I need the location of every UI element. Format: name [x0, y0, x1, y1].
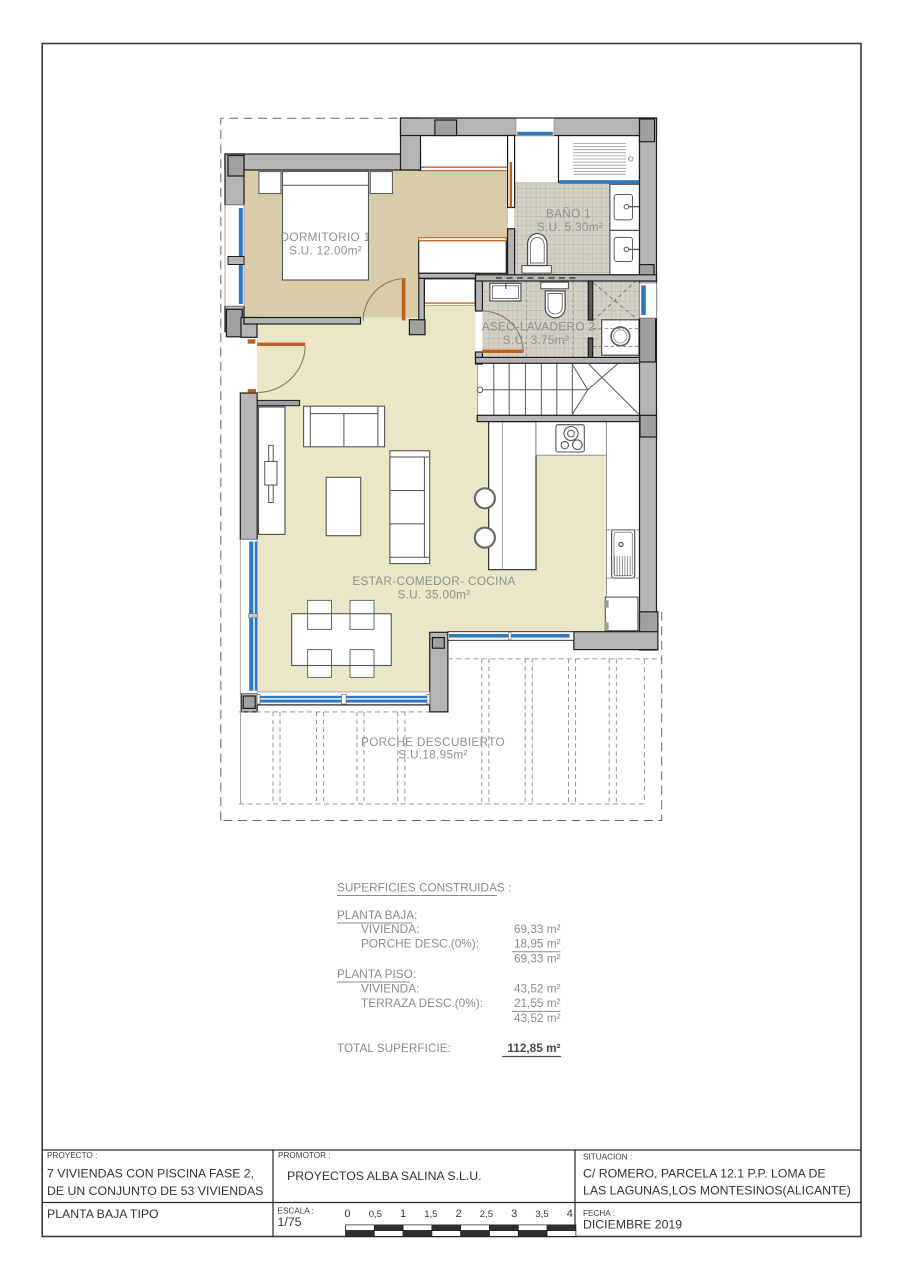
svg-text:BAÑO 1: BAÑO 1 — [546, 207, 591, 221]
svg-text:2: 2 — [456, 1208, 462, 1220]
svg-text:18,95 m²: 18,95 m² — [514, 937, 561, 951]
svg-text:TOTAL SUPERFICIE:: TOTAL SUPERFICIE: — [337, 1041, 451, 1055]
svg-text:PROYECTOS ALBA SALINA S.L.U.: PROYECTOS ALBA SALINA S.L.U. — [287, 1169, 482, 1183]
svg-text:PORCHE DESC.(0%):: PORCHE DESC.(0%): — [361, 937, 479, 951]
svg-text:PROYECTO :: PROYECTO : — [47, 1151, 97, 1160]
svg-text:VIVIENDA:: VIVIENDA: — [361, 922, 419, 936]
svg-text:DICIEMBRE 2019: DICIEMBRE 2019 — [583, 1218, 682, 1232]
svg-text:3,5: 3,5 — [535, 1209, 548, 1220]
svg-text:PLANTA BAJA TIPO: PLANTA BAJA TIPO — [47, 1207, 159, 1221]
svg-text:2,5: 2,5 — [480, 1209, 493, 1220]
svg-text:C/ ROMERO, PARCELA 12.1 P.P. L: C/ ROMERO, PARCELA 12.1 P.P. LOMA DE — [583, 1167, 826, 1181]
svg-text:0,5: 0,5 — [369, 1209, 382, 1220]
svg-text:PLANTA BAJA:: PLANTA BAJA: — [337, 908, 417, 922]
svg-text:S.U.18.95m²: S.U.18.95m² — [398, 748, 468, 762]
svg-text:LAS LAGUNAS,LOS MONTESINOS(ALI: LAS LAGUNAS,LOS MONTESINOS(ALICANTE) — [583, 1184, 851, 1198]
svg-text:PROMOTOR :: PROMOTOR : — [278, 1151, 331, 1160]
svg-text:DORMITORIO 1: DORMITORIO 1 — [281, 230, 371, 244]
svg-text:7 VIVIENDAS CON PISCINA FASE 2: 7 VIVIENDAS CON PISCINA FASE 2, — [47, 1167, 254, 1181]
svg-text:69,33 m²: 69,33 m² — [514, 952, 561, 966]
svg-text:VIVIENDA:: VIVIENDA: — [361, 982, 419, 996]
svg-text:43,52 m²: 43,52 m² — [514, 1011, 561, 1025]
svg-text:21,55 m²: 21,55 m² — [514, 996, 561, 1010]
svg-text:S.U. 3.75m²: S.U. 3.75m² — [503, 333, 569, 347]
svg-text:DE UN CONJUNTO DE 53 VIVIENDAS: DE UN CONJUNTO DE 53 VIVIENDAS — [47, 1184, 263, 1198]
svg-text:3: 3 — [511, 1208, 517, 1220]
svg-text:ASEO-LAVADERO 2: ASEO-LAVADERO 2 — [482, 320, 596, 334]
svg-text:SUPERFICIES CONSTRUIDAS :: SUPERFICIES CONSTRUIDAS : — [337, 881, 511, 895]
svg-text:TERRAZA DESC.(0%):: TERRAZA DESC.(0%): — [361, 996, 483, 1010]
svg-text:0: 0 — [344, 1208, 350, 1220]
svg-text:S.U. 35.00m²: S.U. 35.00m² — [397, 588, 470, 602]
svg-text:69,33 m²: 69,33 m² — [514, 922, 561, 936]
svg-text:SITUACION :: SITUACION : — [583, 1153, 632, 1162]
svg-text:1,5: 1,5 — [424, 1209, 437, 1220]
svg-text:S.U. 5.30m²: S.U. 5.30m² — [537, 220, 603, 234]
svg-text:PLANTA PISO:: PLANTA PISO: — [337, 967, 416, 981]
svg-text:4: 4 — [567, 1208, 573, 1220]
svg-text:1: 1 — [400, 1208, 406, 1220]
svg-text:1/75: 1/75 — [278, 1215, 302, 1229]
svg-text:S.U. 12.00m²: S.U. 12.00m² — [289, 244, 362, 258]
svg-text:43,52 m²: 43,52 m² — [514, 982, 561, 996]
svg-text:112,85 m²: 112,85 m² — [507, 1041, 560, 1055]
svg-text:ESTAR-COMEDOR- COCINA: ESTAR-COMEDOR- COCINA — [352, 574, 515, 588]
